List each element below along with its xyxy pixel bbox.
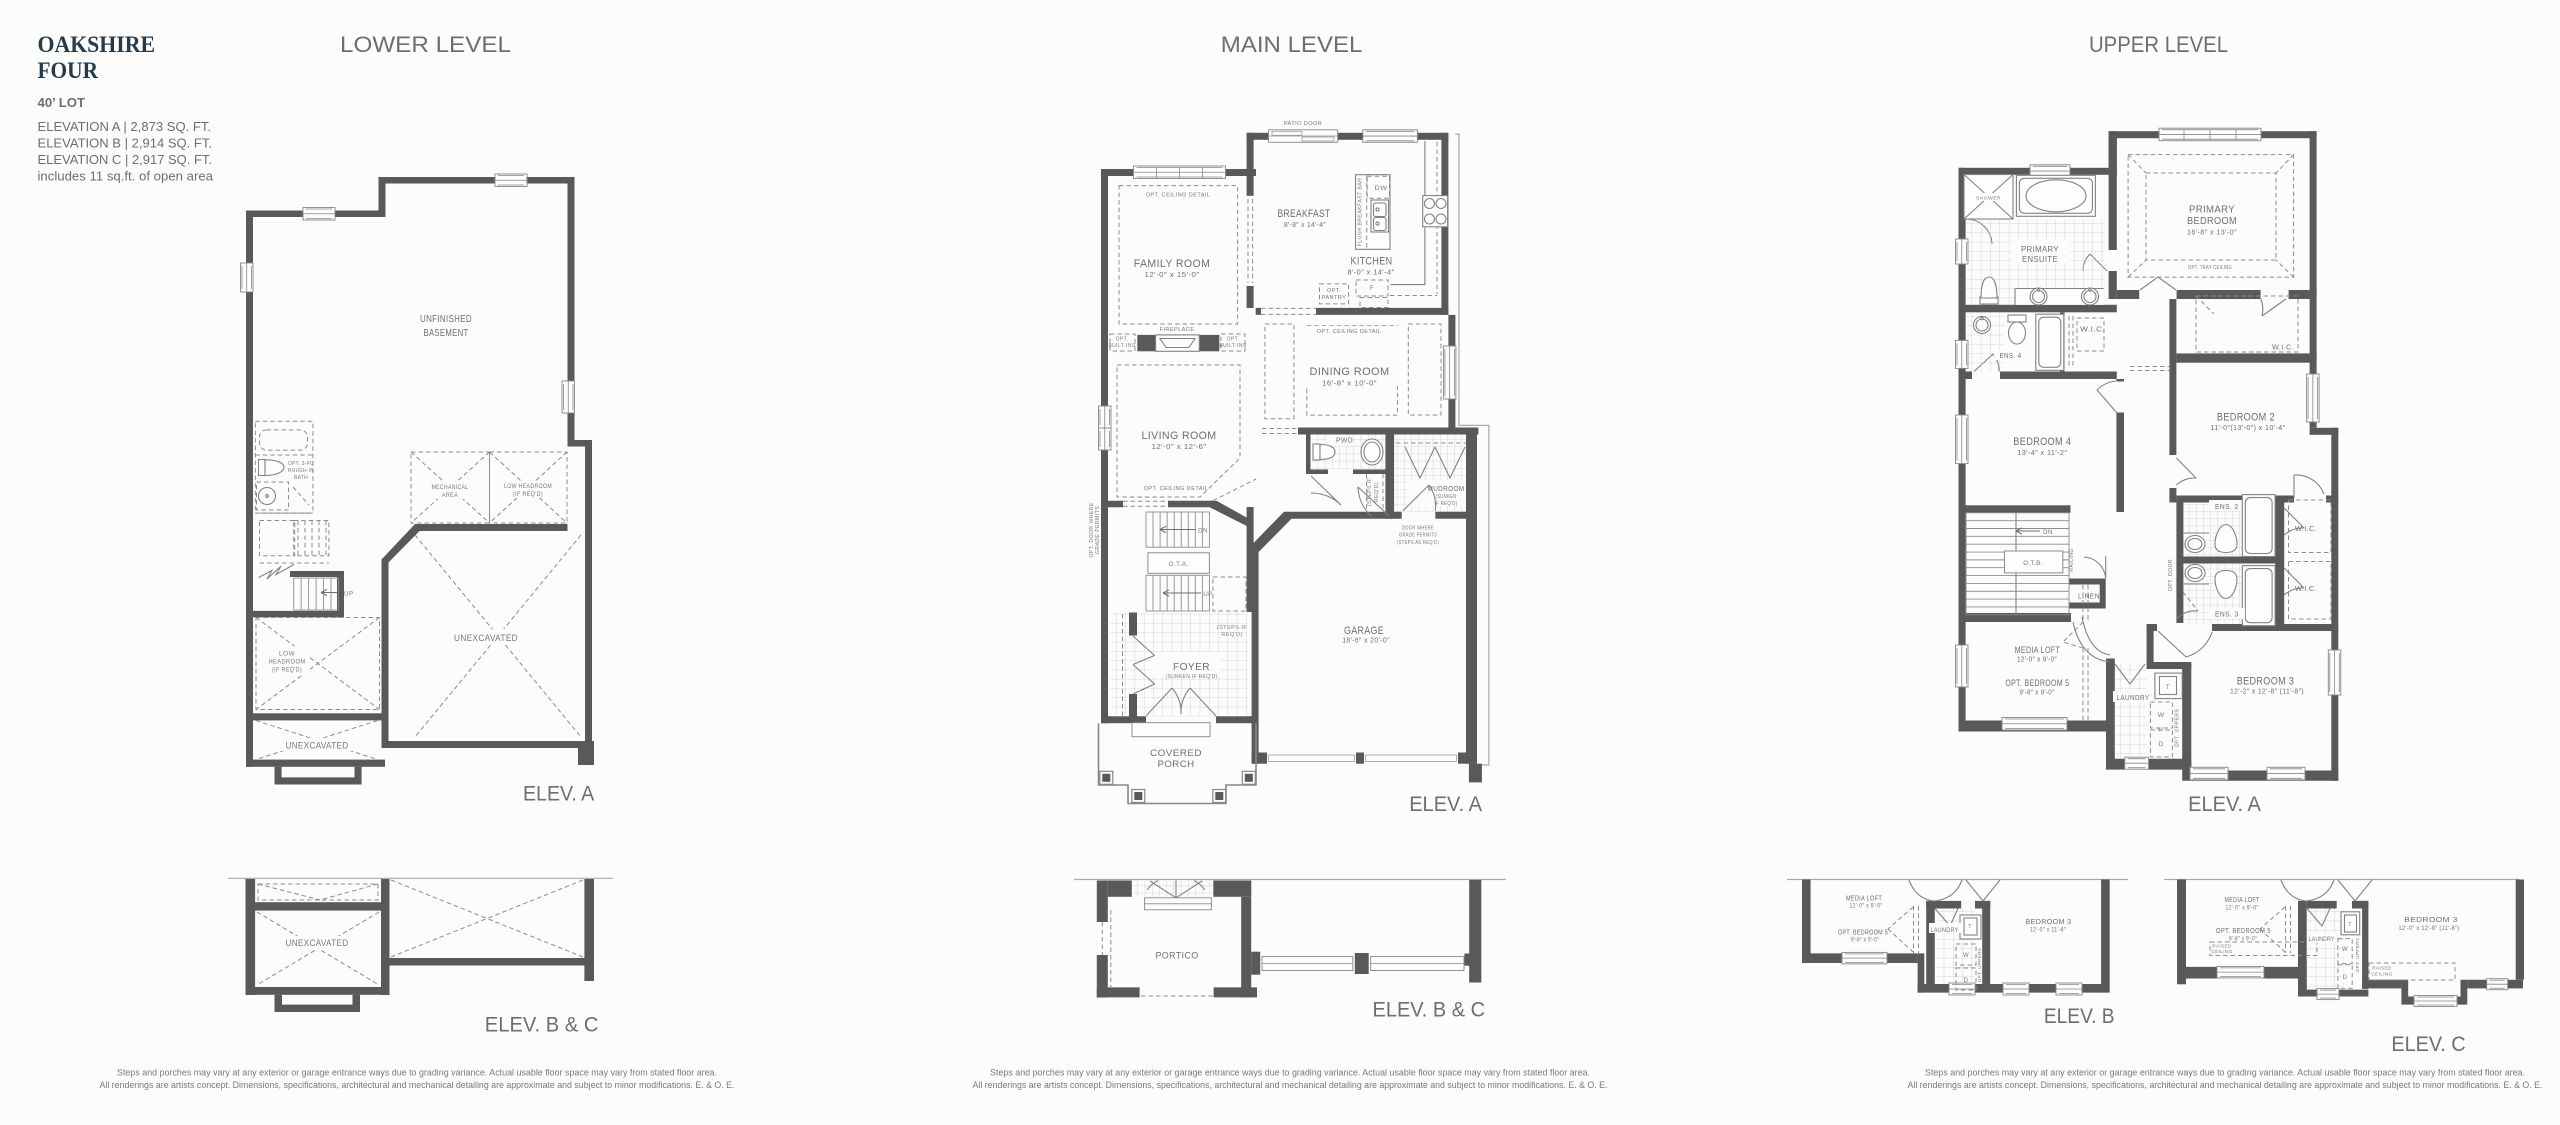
svg-text:O.T.A.: O.T.A.	[1169, 561, 1189, 568]
svg-text:ELEV. C: ELEV. C	[2391, 1033, 2465, 1056]
svg-text:PORTICO: PORTICO	[1156, 951, 1199, 962]
svg-text:H: H	[2159, 728, 2163, 734]
svg-text:OPT. DOOR: OPT. DOOR	[2168, 559, 2174, 591]
svg-text:9′-8″ x 9′-0″: 9′-8″ x 9′-0″	[1851, 938, 1879, 944]
svg-text:CEILING: CEILING	[2211, 949, 2232, 954]
svg-text:13′-4″ x 11′-2″: 13′-4″ x 11′-2″	[2017, 448, 2067, 457]
svg-text:D: D	[1964, 978, 1969, 984]
svg-text:All renderings are artists con: All renderings are artists concept. Dime…	[973, 1080, 1608, 1090]
svg-text:LIVING ROOM: LIVING ROOM	[1142, 430, 1217, 442]
svg-text:LAUNDRY: LAUNDRY	[2309, 936, 2335, 943]
svg-text:DN: DN	[2043, 529, 2053, 536]
svg-text:ENS. 4: ENS. 4	[2000, 351, 2022, 360]
svg-text:Steps and porches may vary at: Steps and porches may vary at any exteri…	[117, 1068, 717, 1078]
svg-text:12′-0″ x 12′-6″: 12′-0″ x 12′-6″	[1152, 442, 1207, 451]
svg-text:BREAKFAST: BREAKFAST	[1278, 208, 1331, 220]
svg-text:UNEXCAVATED: UNEXCAVATED	[286, 938, 349, 948]
svg-text:OPT. 3-PC: OPT. 3-PC	[288, 461, 314, 467]
svg-text:ELEVATION A | 2,873 SQ. FT.: ELEVATION A | 2,873 SQ. FT.	[38, 120, 212, 134]
svg-text:DN: DN	[1198, 528, 1208, 535]
svg-text:8′-0″ x 14′-4″: 8′-0″ x 14′-4″	[1348, 268, 1395, 277]
svg-text:includes 11 sq.ft. of open are: includes 11 sq.ft. of open area	[38, 170, 214, 184]
svg-text:OPT. TRAY CEILING: OPT. TRAY CEILING	[2188, 265, 2232, 271]
svg-text:BEDROOM 4: BEDROOM 4	[2013, 436, 2071, 448]
svg-text:PORCH: PORCH	[1158, 759, 1195, 770]
svg-text:Steps and porches may vary at: Steps and porches may vary at any exteri…	[990, 1068, 1590, 1078]
svg-text:(IF REQ'D): (IF REQ'D)	[513, 491, 543, 498]
svg-text:ELEV. B & C: ELEV. B & C	[1373, 999, 1486, 1022]
svg-text:DINING ROOM: DINING ROOM	[1310, 366, 1390, 378]
svg-text:OPT. BEDROOM 5: OPT. BEDROOM 5	[2216, 928, 2271, 935]
svg-text:W: W	[2158, 712, 2165, 719]
svg-text:ENS. 3: ENS. 3	[2215, 610, 2239, 619]
svg-text:W.I.C.: W.I.C.	[2272, 343, 2294, 352]
svg-text:OPT.: OPT.	[1116, 337, 1129, 343]
svg-text:BEDROOM 2: BEDROOM 2	[2217, 411, 2275, 423]
svg-text:12′-0″ x 9′-0″: 12′-0″ x 9′-0″	[2226, 906, 2259, 912]
svg-text:All renderings are artists con: All renderings are artists concept. Dime…	[100, 1080, 735, 1090]
svg-text:UNEXCAVATED: UNEXCAVATED	[286, 741, 349, 751]
svg-text:MEDIA LOFT: MEDIA LOFT	[1846, 896, 1883, 903]
svg-text:ELEV. A: ELEV. A	[1409, 793, 1482, 816]
svg-text:PRIMARY: PRIMARY	[2189, 204, 2235, 216]
svg-text:All renderings are artists con: All renderings are artists concept. Dime…	[1908, 1080, 2543, 1090]
svg-text:OPT. CEILING DETAIL: OPT. CEILING DETAIL	[1146, 193, 1211, 199]
svg-text:LAUNDRY: LAUNDRY	[1931, 927, 1959, 934]
svg-text:OPT. UPPERS: OPT. UPPERS	[2175, 709, 2181, 748]
svg-text:9′-8″ x 9′-0″: 9′-8″ x 9′-0″	[2020, 688, 2055, 697]
svg-text:ELEVATION B | 2,914 SQ. FT.: ELEVATION B | 2,914 SQ. FT.	[38, 137, 213, 151]
svg-text:BATH: BATH	[294, 475, 308, 481]
svg-text:12′-0″ x 12′-8″ (11′-8″): 12′-0″ x 12′-8″ (11′-8″)	[2399, 926, 2460, 932]
svg-text:BUILT-INS: BUILT-INS	[1108, 343, 1135, 349]
svg-text:CEILING: CEILING	[2371, 972, 2392, 977]
svg-text:ELEV. B: ELEV. B	[2044, 1005, 2115, 1028]
svg-text:DW: DW	[1375, 185, 1388, 192]
svg-text:MAIN LEVEL: MAIN LEVEL	[1221, 32, 1363, 57]
svg-text:W.I.C.: W.I.C.	[2080, 325, 2105, 334]
svg-text:PANTRY: PANTRY	[1322, 295, 1347, 301]
svg-text:FOUR: FOUR	[38, 58, 99, 83]
svg-text:D: D	[2343, 975, 2348, 981]
svg-text:UNEXCAVATED: UNEXCAVATED	[454, 633, 518, 643]
svg-text:12′-0″ x 15′-0″: 12′-0″ x 15′-0″	[1145, 270, 1200, 279]
svg-text:LOW: LOW	[279, 651, 295, 658]
svg-text:11′-0″(13′-0″) x 10′-4″: 11′-0″(13′-0″) x 10′-4″	[2211, 423, 2286, 432]
svg-text:ROUGH-IN: ROUGH-IN	[288, 468, 314, 474]
svg-text:FOYER: FOYER	[1173, 662, 1210, 673]
svg-text:W: W	[2342, 947, 2348, 953]
svg-text:(STEPS AS REQ'D): (STEPS AS REQ'D)	[1397, 540, 1439, 546]
svg-text:PRIMARY: PRIMARY	[2021, 244, 2059, 254]
svg-text:(SUNKEN: (SUNKEN	[1436, 494, 1457, 500]
svg-text:COVERED: COVERED	[1150, 748, 1202, 759]
svg-text:8′-8″ x 14′-4″: 8′-8″ x 14′-4″	[1284, 220, 1326, 229]
svg-text:LINEN: LINEN	[2078, 592, 2100, 601]
svg-text:OPT. CEILING DETAIL: OPT. CEILING DETAIL	[1317, 329, 1382, 335]
svg-text:BEDROOM 3: BEDROOM 3	[2026, 917, 2072, 926]
svg-text:UP: UP	[1203, 591, 1212, 598]
svg-text:(STEPS IF: (STEPS IF	[1367, 478, 1373, 506]
svg-text:(SUNKEN IF REQ'D): (SUNKEN IF REQ'D)	[1166, 674, 1218, 680]
svg-text:F: F	[1370, 285, 1374, 292]
svg-text:PATIO DOOR: PATIO DOOR	[1284, 121, 1322, 127]
svg-text:GRADE PERMITS: GRADE PERMITS	[1399, 533, 1437, 539]
svg-text:D: D	[2158, 741, 2163, 748]
svg-text:12′-0″ x 9′-0″: 12′-0″ x 9′-0″	[2017, 655, 2057, 664]
svg-text:ELEV. A: ELEV. A	[523, 783, 594, 806]
svg-text:ELEV. B & C: ELEV. B & C	[485, 1014, 599, 1037]
svg-text:UP: UP	[344, 591, 353, 598]
svg-text:ENS. 2: ENS. 2	[2215, 502, 2239, 511]
svg-text:OPT.: OPT.	[1327, 288, 1341, 294]
svg-text:12′-0″ x 9′-0″: 12′-0″ x 9′-0″	[1850, 904, 1883, 910]
svg-text:FLUSH BREAKFAST BAR: FLUSH BREAKFAST BAR	[1358, 178, 1364, 247]
svg-text:AREA: AREA	[442, 492, 458, 499]
svg-text:SHOWER: SHOWER	[1976, 196, 2001, 202]
svg-text:T: T	[2166, 684, 2170, 691]
svg-text:OPT. CEILING DETAIL: OPT. CEILING DETAIL	[1144, 486, 1209, 492]
svg-text:OPT. BEDROOM 5: OPT. BEDROOM 5	[1838, 929, 1888, 936]
svg-text:ENSUITE: ENSUITE	[2022, 254, 2058, 264]
svg-text:Steps and porches may vary at: Steps and porches may vary at any exteri…	[1925, 1068, 2525, 1078]
svg-text:T: T	[1968, 924, 1972, 930]
svg-text:LAUNDRY: LAUNDRY	[2117, 693, 2150, 702]
svg-text:FAMILY ROOM: FAMILY ROOM	[1134, 258, 1211, 270]
svg-text:FIREPLACE: FIREPLACE	[1160, 327, 1195, 333]
svg-text:LOWER LEVEL: LOWER LEVEL	[340, 32, 511, 57]
svg-text:ELEV. A: ELEV. A	[2188, 793, 2261, 816]
svg-text:KITCHEN: KITCHEN	[1351, 256, 1393, 268]
svg-text:PWD: PWD	[1336, 436, 1353, 445]
svg-text:GRADE PERMITS: GRADE PERMITS	[1095, 506, 1101, 554]
svg-text:(IF REQ'D): (IF REQ'D)	[272, 667, 302, 674]
svg-text:LOW HEADROOM: LOW HEADROOM	[504, 483, 552, 490]
svg-text:OPT.: OPT.	[1227, 337, 1240, 343]
svg-text:RAILING: RAILING	[2069, 548, 2075, 572]
svg-text:12′-0″ x 11′-8″: 12′-0″ x 11′-8″	[2030, 928, 2066, 934]
svg-text:ELEVATION C | 2,917 SQ. FT.: ELEVATION C | 2,917 SQ. FT.	[38, 153, 213, 167]
svg-text:OAKSHIRE: OAKSHIRE	[38, 32, 156, 57]
svg-text:12′-2″ x 12′-8″ (11′-8″): 12′-2″ x 12′-8″ (11′-8″)	[2230, 687, 2304, 696]
svg-text:BEDROOM 3: BEDROOM 3	[2404, 915, 2458, 924]
svg-text:W: W	[1963, 953, 1969, 959]
svg-text:18′-6″ x 20′-0″: 18′-6″ x 20′-0″	[1342, 636, 1390, 645]
svg-text:RAISED: RAISED	[2372, 966, 2392, 971]
svg-text:BASEMENT: BASEMENT	[424, 328, 469, 339]
svg-text:HEADROOM: HEADROOM	[269, 659, 306, 666]
svg-text:40’ LOT: 40’ LOT	[38, 96, 86, 110]
svg-text:RAISED: RAISED	[2212, 944, 2232, 949]
svg-text:O.T.B.: O.T.B.	[2023, 560, 2043, 567]
svg-text:UNFINISHED: UNFINISHED	[420, 314, 472, 325]
svg-text:T: T	[2348, 922, 2352, 928]
svg-text:16′-8″ x 13′-0″: 16′-8″ x 13′-0″	[2187, 228, 2237, 237]
svg-text:MECHANICAL: MECHANICAL	[432, 484, 469, 491]
svg-text:OPT. UPPERS: OPT. UPPERS	[2355, 938, 2360, 973]
svg-text:OPT. UPPERS: OPT. UPPERS	[1977, 948, 1982, 983]
svg-text:BUILT-INS: BUILT-INS	[1219, 343, 1246, 349]
svg-text:IF REQ'D): IF REQ'D)	[1435, 501, 1458, 507]
svg-text:REQ'D): REQ'D)	[1374, 482, 1380, 502]
svg-text:BEDROOM: BEDROOM	[2187, 215, 2237, 227]
svg-text:UPPER LEVEL: UPPER LEVEL	[2089, 32, 2228, 57]
svg-text:9′-8″ x 9′-0″: 9′-8″ x 9′-0″	[2229, 937, 2257, 943]
svg-text:DOOR WHERE: DOOR WHERE	[1402, 526, 1434, 532]
svg-text:16′-8″ x 10′-0″: 16′-8″ x 10′-0″	[1322, 379, 1377, 388]
svg-text:MEDIA LOFT: MEDIA LOFT	[2225, 897, 2260, 904]
